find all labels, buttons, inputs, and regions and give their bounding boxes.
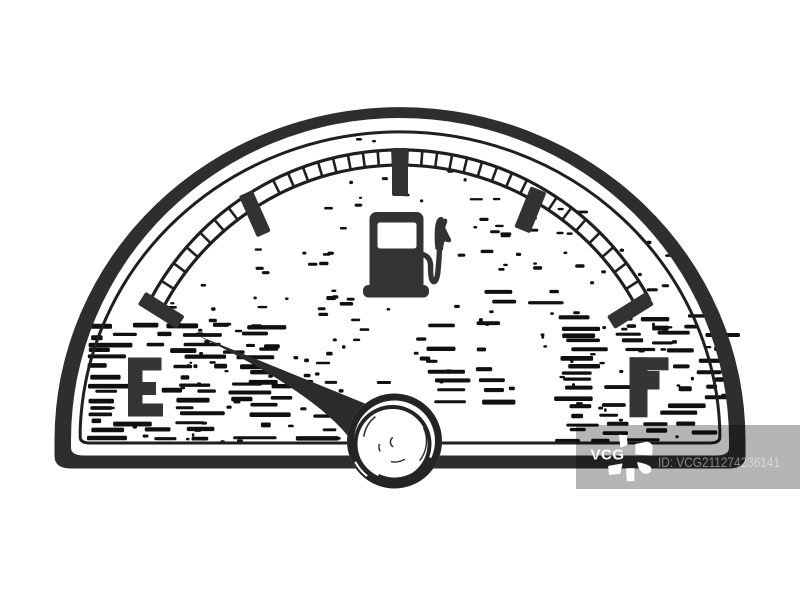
- svg-text:VCG: VCG: [591, 447, 625, 464]
- svg-text:ID: VCG211274236141: ID: VCG211274236141: [658, 454, 780, 470]
